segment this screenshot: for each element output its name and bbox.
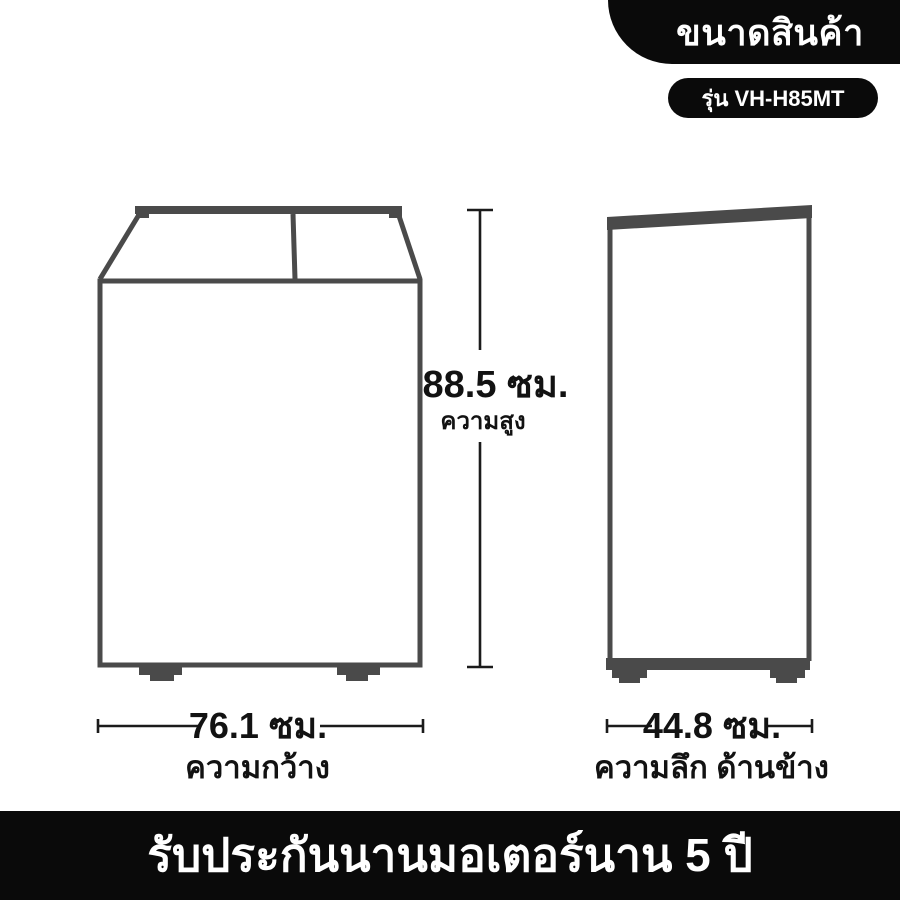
- model-text: รุ่น VH-H85MT: [702, 81, 845, 116]
- width-value: 76.1 ซม.: [168, 706, 348, 746]
- front-lid-divider: [293, 214, 295, 279]
- depth-label: ความลึก ด้านข้าง: [594, 750, 824, 786]
- size-title-text: ขนาดสินค้า: [676, 4, 864, 61]
- front-foot-left: [139, 666, 182, 681]
- front-view-drawing: [100, 206, 420, 681]
- front-lid-slant-left: [100, 213, 140, 279]
- warranty-banner: รับประกันนานมอเตอร์นาน 5 ปี: [0, 811, 900, 900]
- width-label: ความกว้าง: [160, 750, 355, 786]
- side-top-bar: [607, 205, 812, 230]
- front-lid-slant-right: [398, 213, 420, 279]
- side-base-bar: [606, 658, 810, 670]
- side-foot-left: [612, 670, 647, 683]
- front-lid-top-bar: [135, 206, 402, 214]
- height-value: 88.5 ซม.: [408, 364, 583, 406]
- side-view-drawing: [606, 205, 812, 683]
- product-dimension-infographic: ขนาดสินค้า รุ่น VH-H85MT 88.5 ซม. ความสู…: [0, 0, 900, 900]
- model-badge: รุ่น VH-H85MT: [668, 78, 878, 118]
- size-title-badge: ขนาดสินค้า: [608, 0, 900, 64]
- depth-value: 44.8 ซม.: [622, 706, 802, 746]
- side-foot-right: [770, 670, 805, 683]
- front-foot-right: [337, 666, 380, 681]
- warranty-text: รับประกันนานมอเตอร์นาน 5 ปี: [147, 819, 752, 892]
- height-label: ความสูง: [398, 408, 568, 436]
- front-body-outline: [100, 281, 420, 665]
- height-dimension-line: [467, 210, 493, 667]
